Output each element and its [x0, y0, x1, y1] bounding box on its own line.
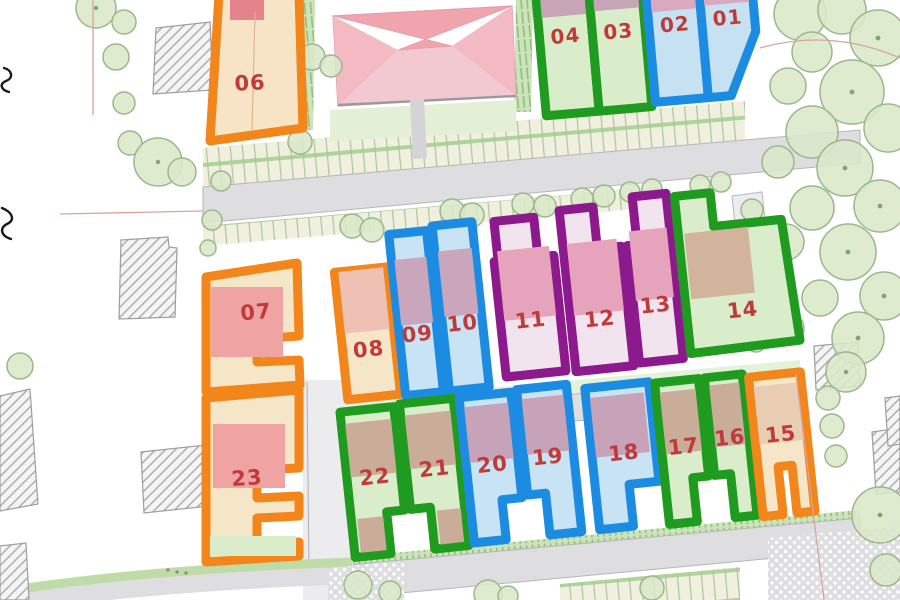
existing-building [119, 237, 177, 319]
existing-building [153, 22, 213, 94]
handwritten-mark [2, 68, 11, 92]
plot-07[interactable]: 07 [206, 263, 300, 392]
plot-label-06: 06 [234, 70, 266, 96]
plot-label-09: 09 [401, 321, 435, 348]
plot-label-08: 08 [352, 336, 386, 363]
plot-label-02: 02 [659, 11, 691, 38]
plot-label-13: 13 [639, 291, 673, 318]
green-strip [514, 0, 533, 112]
plot-label-01: 01 [712, 4, 744, 31]
plot-06[interactable]: 06 [210, 0, 303, 141]
existing-building [885, 396, 900, 446]
plot-label-22: 22 [358, 463, 392, 490]
handwritten-mark [2, 208, 12, 239]
plot-label-03: 03 [602, 18, 634, 45]
existing-building [0, 543, 29, 600]
plot-label-14: 14 [726, 296, 760, 323]
plot-03[interactable]: 03 [585, 0, 652, 111]
plot-label-11: 11 [514, 307, 548, 334]
plot-19[interactable]: 19 [517, 384, 582, 536]
plot-label-04: 04 [550, 23, 582, 50]
plot-11[interactable]: 11 [490, 216, 566, 377]
plot-label-15: 15 [764, 421, 798, 448]
plot-label-19: 19 [531, 443, 565, 470]
plot-row-north: 04 03 02 01 [532, 0, 762, 116]
plot-label-07: 07 [239, 299, 272, 326]
plot-01[interactable]: 01 [694, 0, 761, 98]
plot-label-12: 12 [583, 305, 617, 332]
plot-label-23: 23 [231, 465, 264, 491]
plot-label-20: 20 [475, 451, 509, 478]
building-stem [410, 99, 427, 159]
plot-label-16: 16 [713, 424, 747, 451]
existing-building [141, 445, 209, 513]
plot-label-21: 21 [418, 455, 452, 482]
plot-12[interactable]: 12 [559, 205, 634, 372]
plot-18[interactable]: 18 [585, 382, 663, 530]
plot-label-10: 10 [446, 310, 480, 337]
site-plan-image: 04 03 02 01 06 [0, 0, 900, 600]
plot-label-18: 18 [607, 439, 641, 466]
existing-building [0, 389, 38, 511]
plot-23[interactable]: 23 [206, 390, 299, 562]
plot-label-17: 17 [667, 433, 701, 460]
